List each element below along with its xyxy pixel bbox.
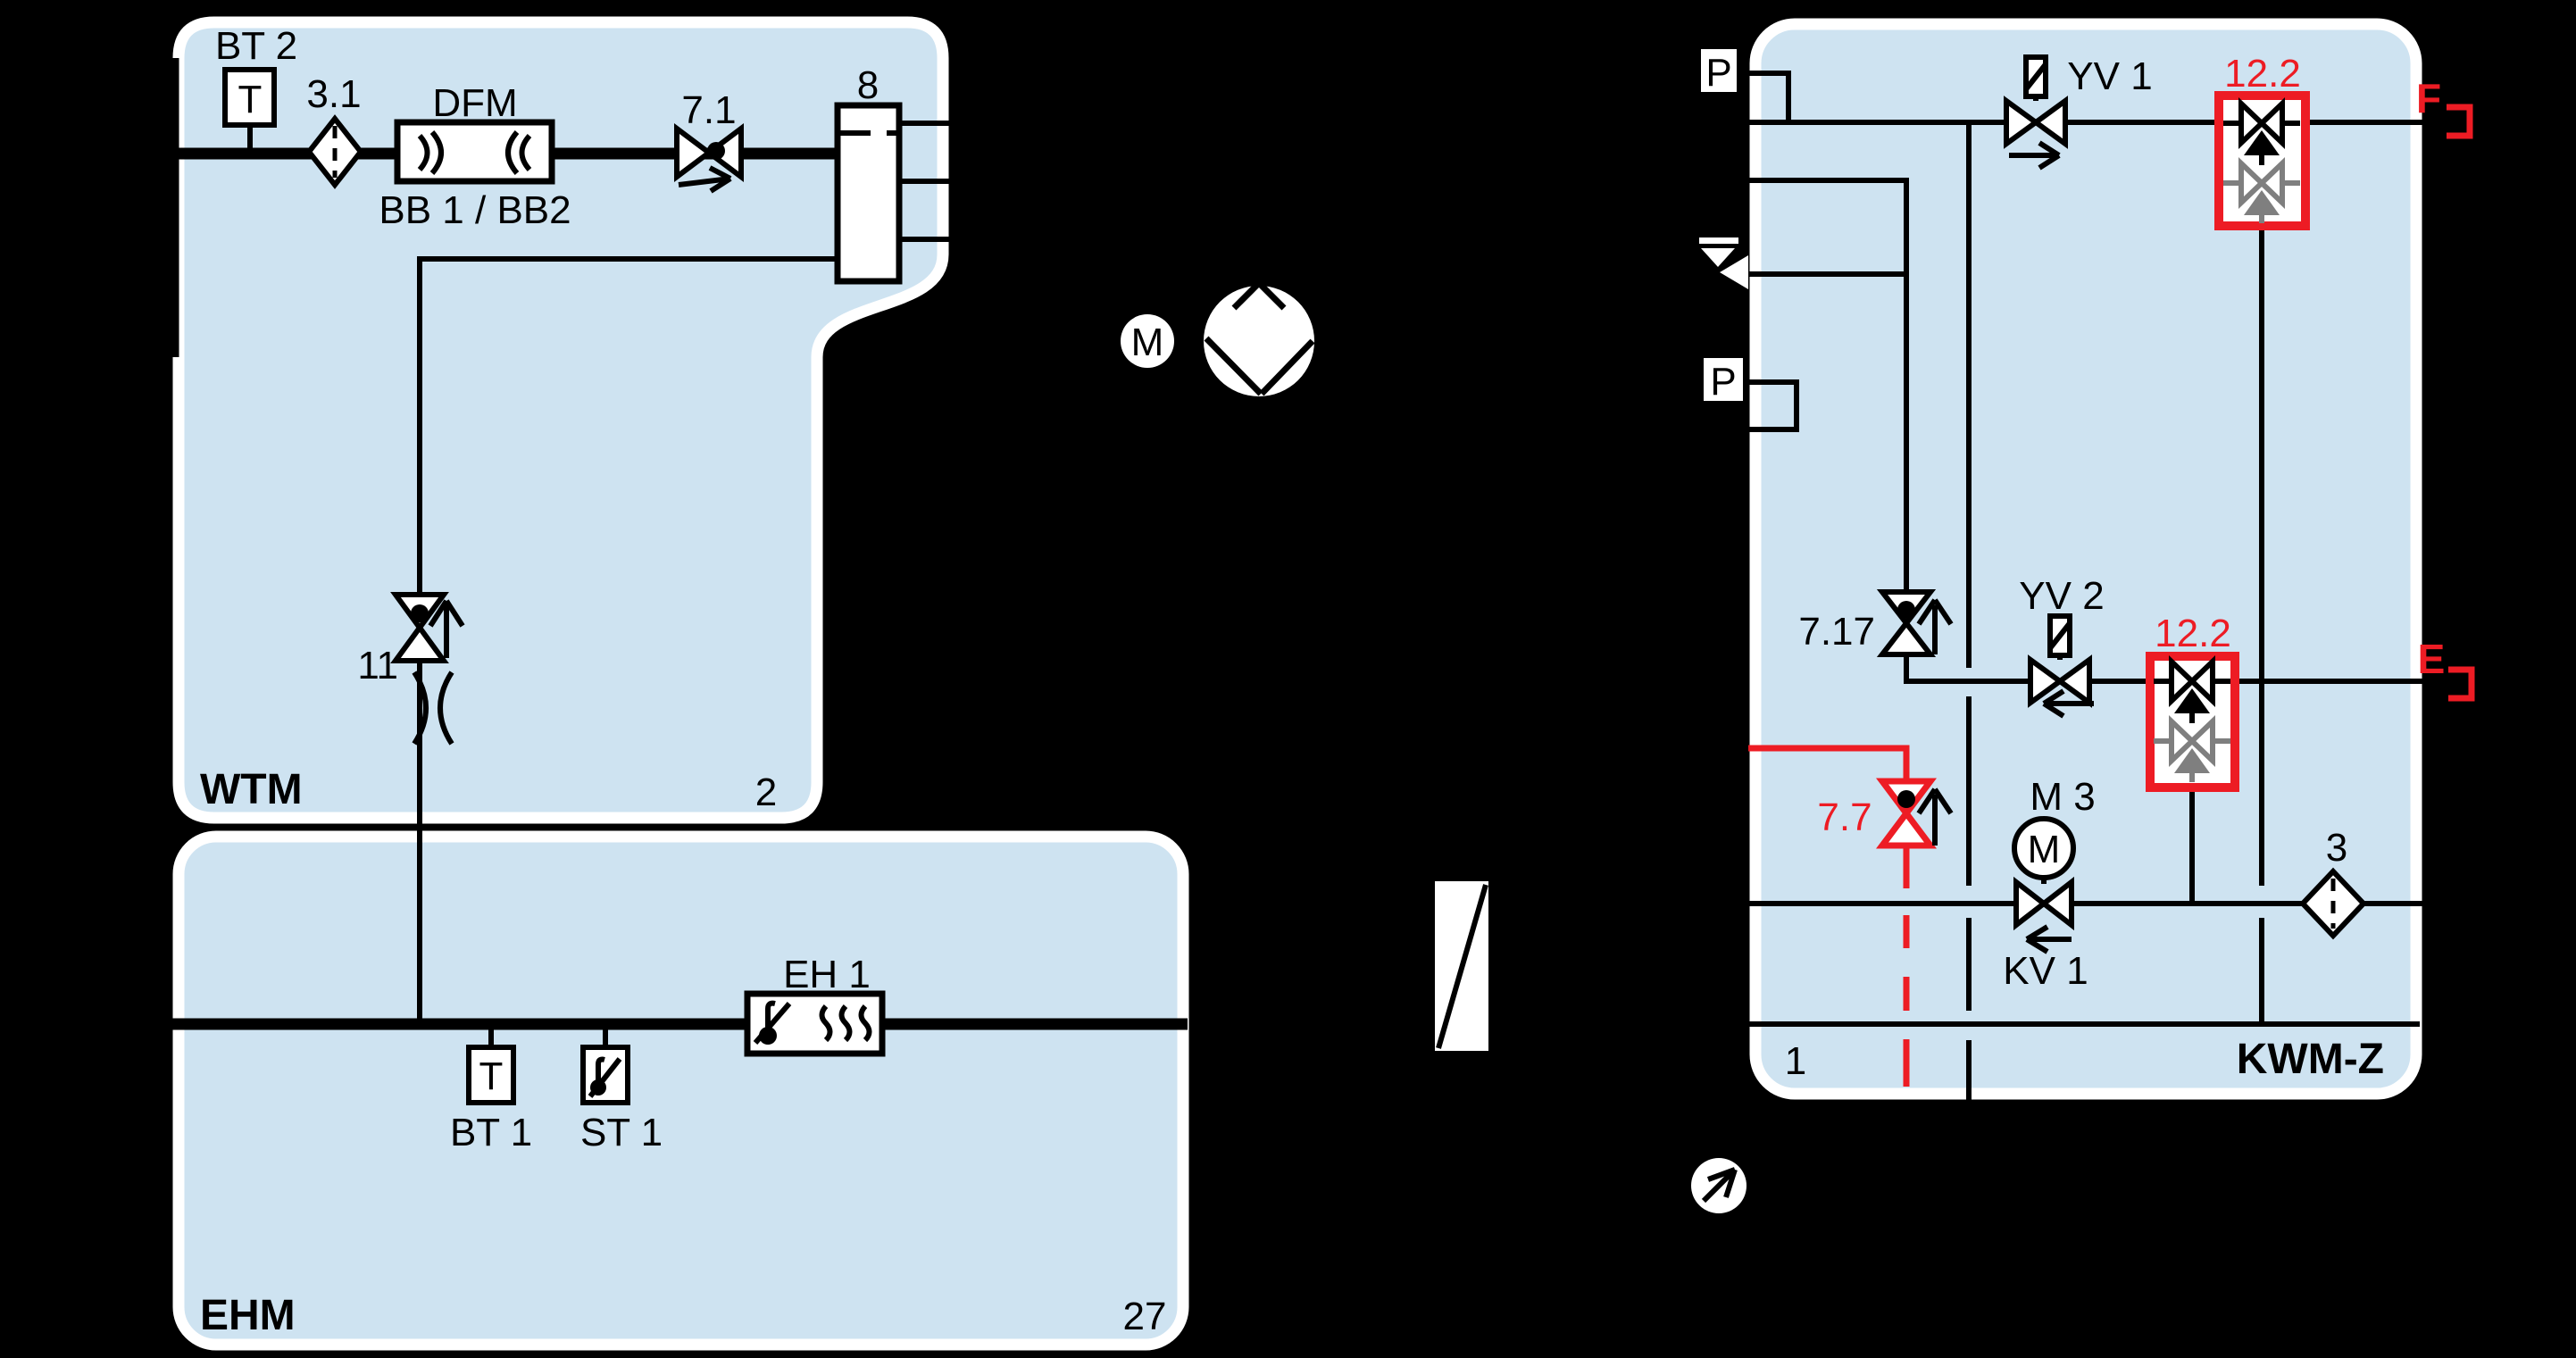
ehm-region-label: EHM (200, 1292, 296, 1339)
flow-meter-dfm-icon (397, 122, 552, 181)
piping-diagram: M (0, 0, 2576, 1358)
valve-71-label: 7.1 (681, 88, 736, 132)
bt1-label: BT 1 (450, 1111, 532, 1154)
connection-f-bracket (2447, 107, 2470, 136)
separator-8-label: 8 (857, 63, 879, 107)
air-separator-8-icon (838, 105, 899, 281)
yv1-label: YV 1 (2067, 54, 2152, 98)
strainer-31-label: 3.1 (306, 72, 361, 116)
backflow-preventer-12-2-top (2219, 96, 2305, 226)
backflow-mid-label: 12.2 (2155, 612, 2231, 655)
kv1-label: KV 1 (2003, 949, 2088, 993)
conn-f-label: F (2416, 75, 2441, 121)
pump-motor-letter: M (1131, 321, 1164, 364)
connection-e-bracket (2448, 670, 2472, 698)
m3-label: M 3 (2030, 775, 2095, 819)
st1-label: ST 1 (580, 1111, 663, 1154)
p-top-letter: P (1705, 51, 1731, 95)
bt2-letter: T (238, 78, 263, 121)
valve-77-label: 7.7 (1817, 796, 1872, 839)
p-mid-letter: P (1710, 360, 1736, 404)
pipe-break-icon (1435, 881, 1488, 1051)
kwm-region-number: 1 (1785, 1039, 1806, 1083)
eh1-label: EH 1 (783, 953, 871, 996)
dfm-sublabel: BB 1 / BB2 (379, 188, 571, 232)
bt1-letter: T (479, 1054, 504, 1098)
conn-e-label: E (2418, 636, 2446, 682)
backflow-top-label: 12.2 (2224, 52, 2301, 96)
dfm-label: DFM (432, 81, 517, 125)
valve-11-label: 11 (357, 644, 398, 687)
valve-717-label: 7.17 (1798, 610, 1875, 654)
pump-motor-icon: M (1121, 314, 1174, 368)
bt2-label: BT 2 (215, 24, 297, 68)
kwm-region (1755, 24, 2416, 1094)
backflow-preventer-12-2-mid (2150, 656, 2235, 787)
strainer-3-label: 3 (2326, 826, 2347, 870)
ehm-region (179, 837, 1183, 1345)
wtm-region-label: WTM (200, 766, 303, 813)
flow-arrow-icon (1691, 1158, 1747, 1213)
diagram-canvas: M (0, 0, 2576, 1358)
pump-icon (1204, 284, 1314, 396)
wtm-region (179, 22, 943, 818)
m3-letter: M (2028, 828, 2061, 871)
heater-eh1-icon (747, 994, 882, 1054)
yv2-label: YV 2 (2019, 574, 2104, 618)
kwm-region-label: KWM-Z (2237, 1036, 2384, 1083)
temp-switch-st1-box (583, 1047, 628, 1103)
ehm-region-number: 27 (1123, 1295, 1167, 1338)
wtm-region-number: 2 (755, 771, 777, 814)
drain-funnel-icon (1699, 237, 1748, 289)
